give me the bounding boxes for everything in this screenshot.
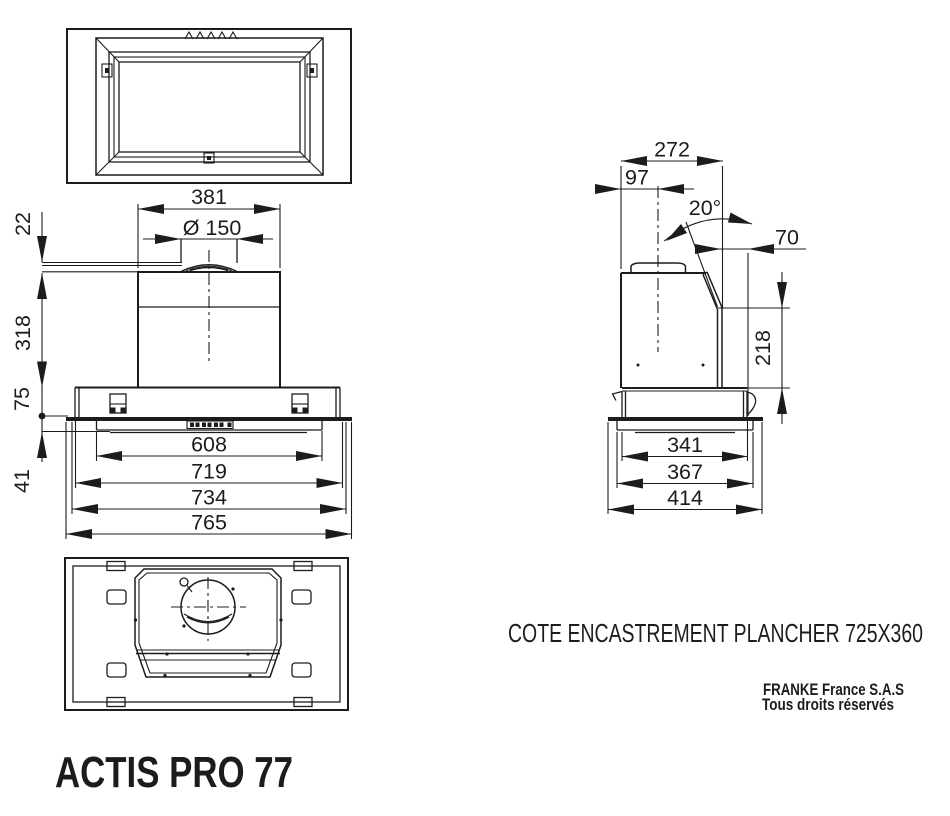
side-view-dimensions: 272 97 20° 70 218 341 367 4 [595,138,806,515]
product-title: ACTIS PRO 77 [55,748,293,797]
drawing-canvas: 381 Ø 150 22 318 75 41 608 719 [0,0,950,816]
control-strip [187,421,233,429]
dim-272-label: 272 [654,138,690,162]
dim-734-label: 734 [191,486,227,510]
dim-22-label: 22 [11,212,35,236]
dim-41-label: 41 [10,469,34,493]
dim-angle-label: 20° [689,196,722,220]
dim-97-label: 97 [625,166,649,190]
dim-70-label: 70 [775,226,799,250]
technical-drawing-page: 381 Ø 150 22 318 75 41 608 719 [0,0,950,816]
dim-75-label: 75 [10,387,34,411]
dim-341-label: 341 [667,433,703,457]
front-view-dimensions: 381 Ø 150 22 318 75 41 608 719 [10,185,352,539]
rights-notice: Tous droits réservés [762,696,894,714]
hook-left [613,392,623,401]
dim-608-label: 608 [191,433,227,457]
dim-367-label: 367 [667,460,703,484]
bottom-panel-view [65,558,348,710]
mounting-bracket-left [110,394,126,413]
frame-clip-left [102,64,112,77]
dim-318-label: 318 [11,315,35,351]
top-panel-view [67,29,351,183]
ceiling-panel [608,417,763,421]
front-elevation-view [42,239,352,433]
dim-218-label: 218 [751,330,775,366]
dim-414-label: 414 [667,486,703,510]
dim-765-label: 765 [191,511,227,535]
frame-clip-right [307,64,317,77]
mounting-bracket-right [292,394,308,413]
dim-719-label: 719 [191,460,227,484]
ceiling-panel [66,417,352,421]
cable-hole [180,578,188,586]
dim-381-label: 381 [191,185,227,209]
dim-duct-label: Ø 150 [183,216,242,240]
installation-note: COTE ENCASTREMENT PLANCHER 725X360 [508,618,923,648]
